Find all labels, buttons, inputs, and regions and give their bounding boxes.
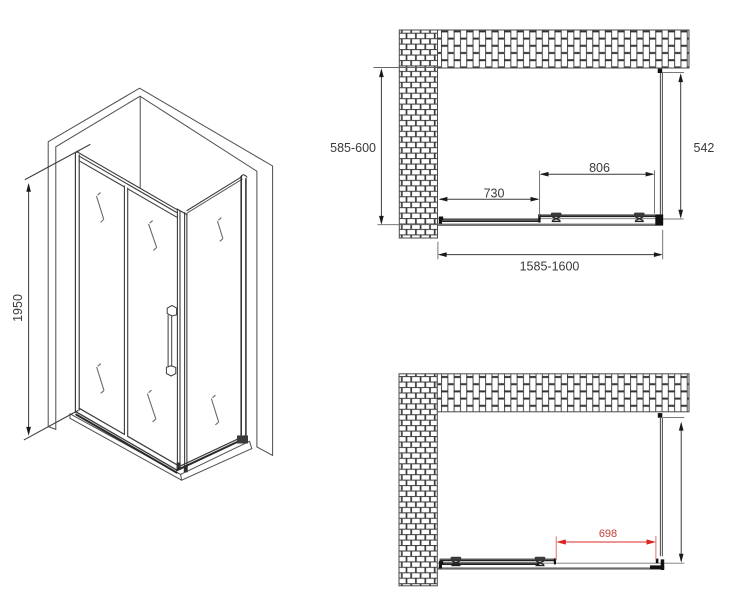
svg-text:1585-1600: 1585-1600 (520, 259, 580, 273)
svg-text:542: 542 (694, 141, 715, 155)
svg-text:806: 806 (589, 161, 610, 175)
svg-text:585-600: 585-600 (330, 141, 376, 155)
svg-text:1950: 1950 (11, 294, 25, 322)
svg-text:698: 698 (599, 528, 617, 540)
svg-text:730: 730 (484, 187, 505, 201)
